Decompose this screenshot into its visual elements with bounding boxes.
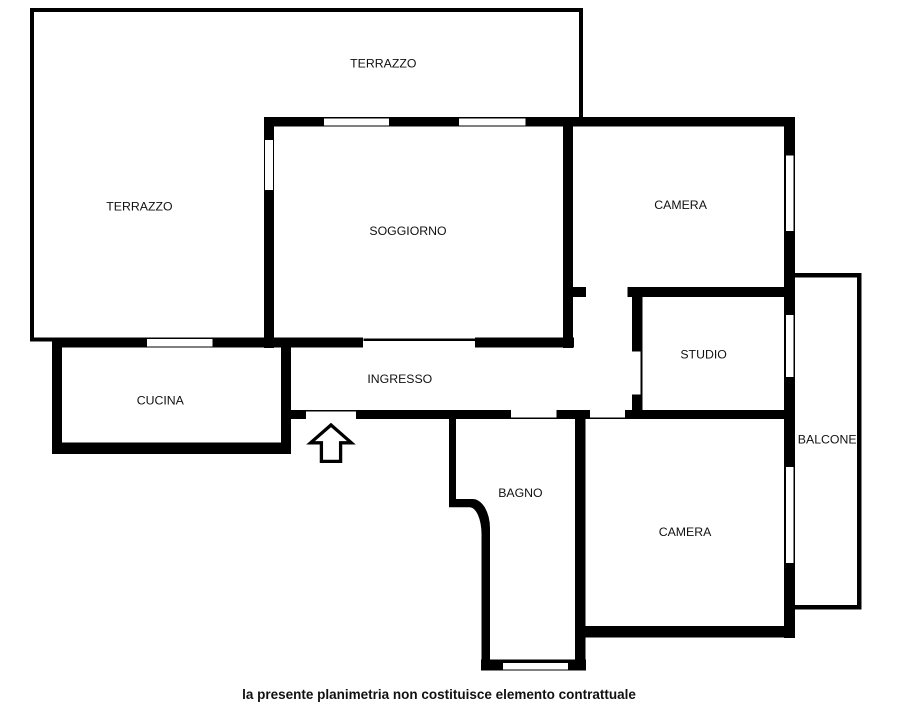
svg-text:la presente planimetria non co: la presente planimetria non costituisce … [242,687,636,702]
svg-text:CUCINA: CUCINA [137,393,185,407]
svg-text:BAGNO: BAGNO [498,486,542,500]
svg-text:CAMERA: CAMERA [659,525,712,539]
svg-text:SOGGIORNO: SOGGIORNO [369,224,446,238]
svg-text:INGRESSO: INGRESSO [367,372,432,386]
svg-text:BALCONE: BALCONE [798,432,857,446]
svg-text:CAMERA: CAMERA [654,198,707,212]
svg-text:STUDIO: STUDIO [680,348,726,362]
svg-text:TERRAZZO: TERRAZZO [350,56,416,70]
svg-text:TERRAZZO: TERRAZZO [106,200,172,214]
